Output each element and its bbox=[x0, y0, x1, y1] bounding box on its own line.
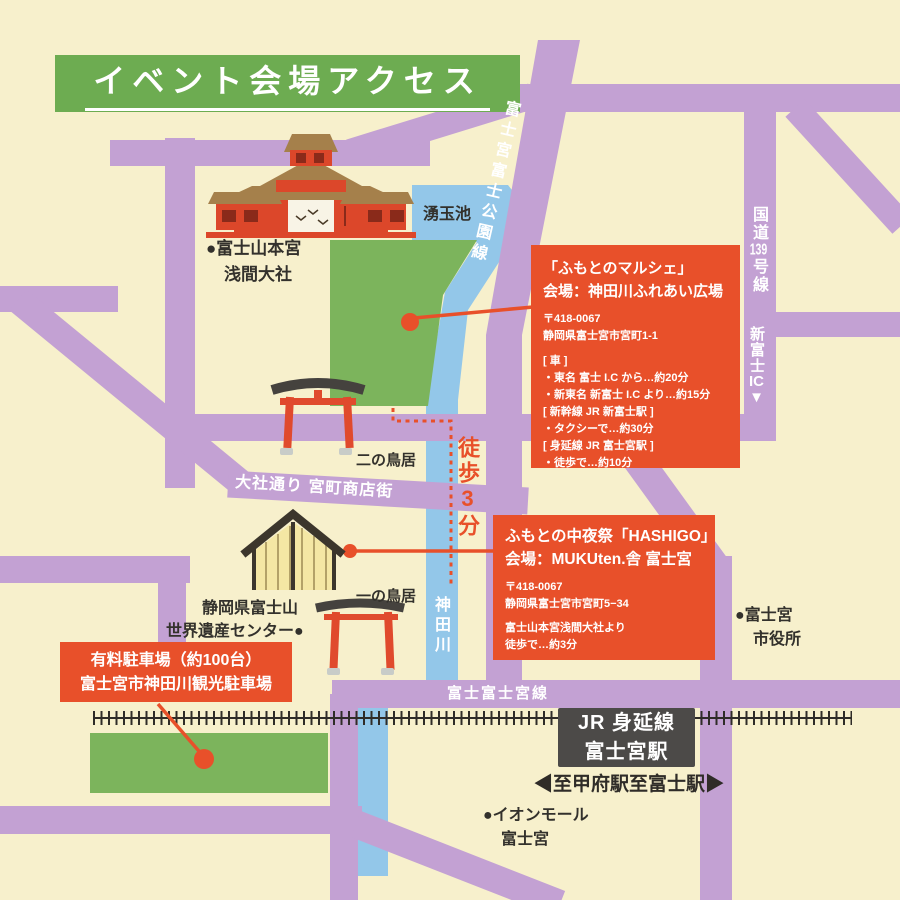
marche-access-list: [ 車 ] ・東名 富士 I.C から…約20分 ・新東名 新富士 I.C より… bbox=[543, 353, 728, 472]
park-areas bbox=[90, 240, 477, 793]
direction-fuji: 至富士駅▶ bbox=[629, 769, 724, 796]
walk-3min-label: 徒歩3分 bbox=[451, 436, 483, 539]
hashigo-postal: 〒418-0067 bbox=[505, 579, 703, 596]
hashigo-title-line2: 会場：MUKUten.舎 富士宮 bbox=[505, 548, 703, 571]
ichino-torii-illustration bbox=[316, 603, 404, 675]
aeon-mall-label: ●イオンモール 富士宮 bbox=[483, 804, 589, 852]
city-hall-label: ●富士宮 市役所 bbox=[735, 604, 801, 652]
hashigo-address: 静岡県富士宮市宮町5−34 bbox=[505, 596, 703, 613]
title-banner: イベント会場アクセス bbox=[55, 55, 520, 112]
marche-marker bbox=[401, 313, 419, 331]
marche-address: 静岡県富士宮市宮町1-1 bbox=[543, 328, 728, 345]
marche-title-line2: 会場：神田川ふれあい広場 bbox=[543, 281, 728, 304]
shin-fuji-ic-label: 新富士IC▼ bbox=[746, 326, 767, 407]
hashigo-note-line1: 富士山本宮浅間大社より bbox=[505, 620, 703, 637]
parking-info-box: 有料駐車場（約100台） 富士宮市神田川観光駐車場 bbox=[60, 642, 292, 702]
fuji-fujinomiya-line-road bbox=[332, 680, 900, 708]
parking-marker bbox=[194, 749, 214, 769]
hashigo-title-line1: ふもとの中夜祭「HASHIGO」 bbox=[505, 525, 703, 548]
parking-line1: 有料駐車場（約100台） bbox=[66, 649, 286, 673]
ichino-torii-label: 一の鳥居 bbox=[356, 586, 416, 609]
marche-postal: 〒418-0067 bbox=[543, 311, 728, 328]
page-title: イベント会場アクセス bbox=[85, 56, 489, 111]
hashigo-note-line2: 徒歩で…約3分 bbox=[505, 637, 703, 654]
marche-title-line1: 「ふもとのマルシェ」 bbox=[543, 258, 728, 281]
hashigo-info-box: ふもとの中夜祭「HASHIGO」 会場：MUKUten.舎 富士宮 〒418-0… bbox=[493, 515, 715, 660]
route-139-label: 国道139号線 bbox=[746, 206, 770, 294]
heritage-center-label-line1: 静岡県富士山 bbox=[202, 597, 298, 621]
access-map: イベント会場アクセス ●富士山本宮 浅間大社 湧玉池 富士宮富士公園線 国道13… bbox=[0, 0, 900, 900]
sengen-shrine-label: ●富士山本宮 浅間大社 bbox=[206, 236, 301, 287]
station-line1: JR 身延線 bbox=[578, 709, 675, 737]
fujinomiya-station-box: JR 身延線 富士宮駅 bbox=[558, 708, 695, 767]
parking-line2: 富士宮市神田川観光駐車場 bbox=[66, 673, 286, 697]
heritage-center-label-line2: 世界遺産センター● bbox=[166, 620, 304, 644]
fuji-fujinomiya-line-label: 富士富士宮線 bbox=[447, 682, 549, 703]
nino-torii-label: 二の鳥居 bbox=[356, 450, 416, 473]
direction-kofu: ◀至甲府駅 bbox=[534, 769, 629, 796]
map-graphics bbox=[0, 0, 900, 900]
wakutama-pond-label: 湧玉池 bbox=[423, 203, 471, 227]
kanda-river-label: 神田川 bbox=[428, 596, 452, 656]
station-line2: 富士宮駅 bbox=[585, 738, 669, 766]
mukuten-house-illustration bbox=[246, 514, 340, 590]
station-directions: ◀至甲府駅 至富士駅▶ bbox=[534, 769, 720, 796]
down-arrow-icon: ▼ bbox=[748, 389, 765, 407]
marche-info-box: 「ふもとのマルシェ」 会場：神田川ふれあい広場 〒418-0067 静岡県富士宮… bbox=[531, 245, 740, 468]
